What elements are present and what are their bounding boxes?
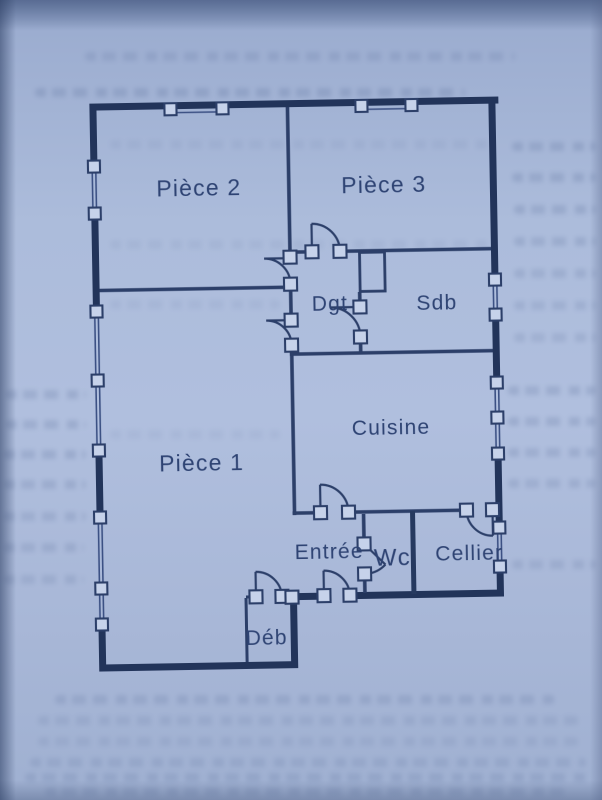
room-label-piece2: Pièce 2	[156, 174, 242, 201]
floor-plan: Pièce 2 Pièce 3 Pièce 1 Dgt Sdb Cuisine …	[0, 0, 602, 800]
sdb-closet	[359, 252, 385, 291]
room-label-wc: Wc	[374, 544, 412, 572]
room-label-piece3: Pièce 3	[341, 171, 427, 198]
room-label-sdb: Sdb	[416, 291, 457, 315]
room-label-dgt: Dgt	[312, 292, 349, 316]
room-label-deb: Déb	[245, 626, 288, 650]
room-label-piece1: Pièce 1	[159, 449, 245, 476]
room-label-cellier: Cellier	[435, 542, 503, 566]
outer-walls	[89, 97, 508, 672]
room-label-cuisine: Cuisine	[352, 416, 431, 440]
room-labels: Pièce 2 Pièce 3 Pièce 1 Dgt Sdb Cuisine …	[154, 170, 505, 652]
room-label-entree: Entrée	[294, 540, 363, 564]
scanned-page: Pièce 2 Pièce 3 Pièce 1 Dgt Sdb Cuisine …	[0, 0, 602, 800]
